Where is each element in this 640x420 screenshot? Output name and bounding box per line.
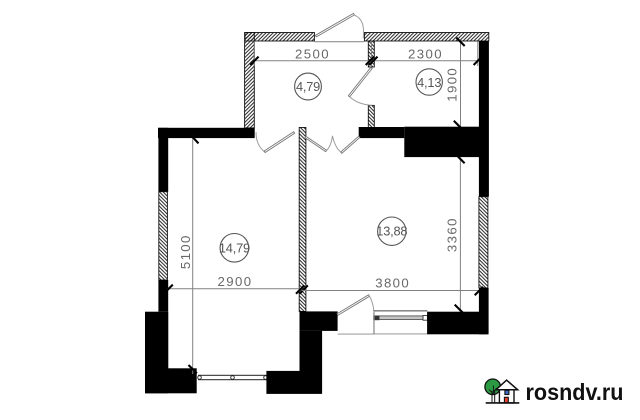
svg-text:13,88: 13,88 [376,224,407,239]
svg-text:4,13: 4,13 [417,75,441,90]
svg-text:2500: 2500 [295,46,330,61]
svg-text:5100: 5100 [178,234,193,269]
svg-text:3360: 3360 [445,217,460,252]
svg-text:4,79: 4,79 [296,79,320,94]
svg-text:rosndv.ru: rosndv.ru [526,379,624,405]
svg-text:1900: 1900 [444,67,459,102]
svg-text:14,79: 14,79 [219,240,250,255]
svg-text:2300: 2300 [408,46,443,61]
svg-text:3800: 3800 [375,276,410,291]
svg-text:2900: 2900 [218,274,253,289]
